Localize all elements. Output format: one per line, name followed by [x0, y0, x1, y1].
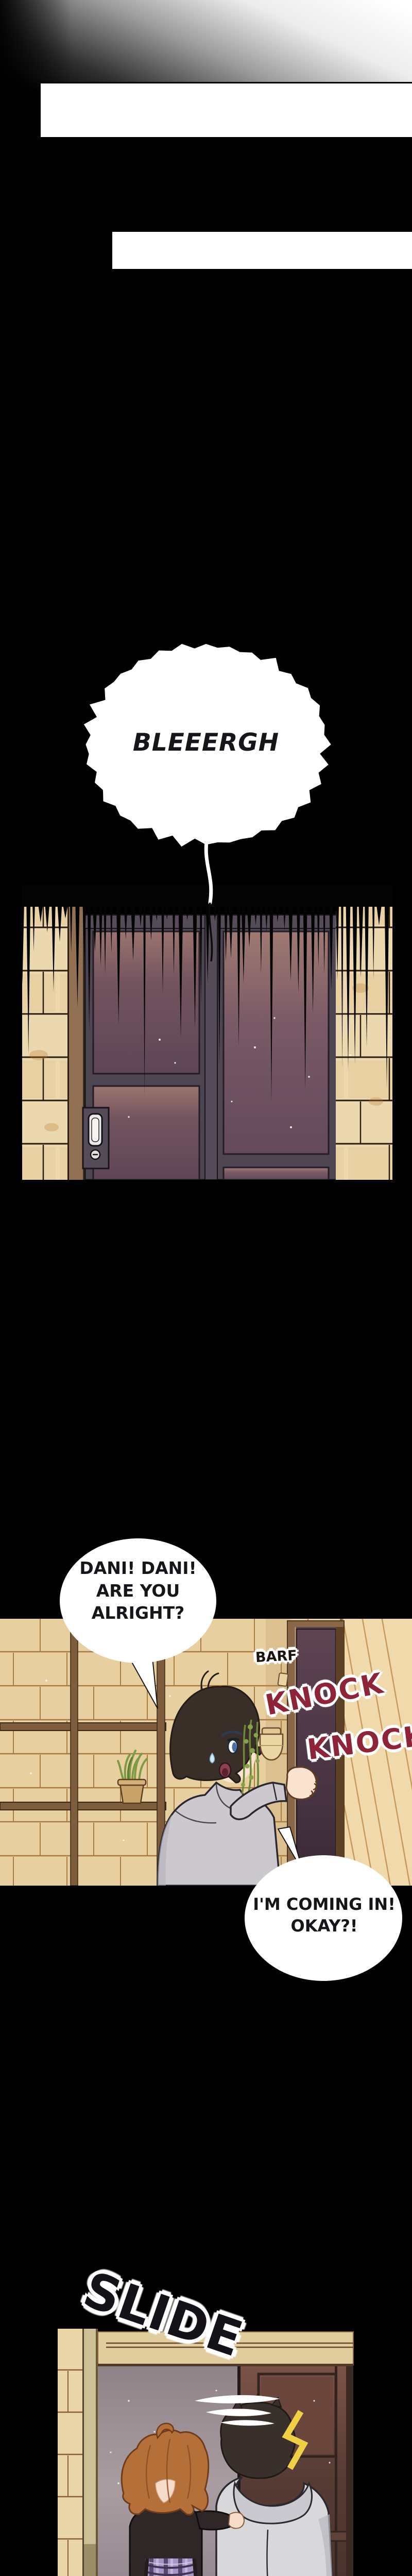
girl-skirt [145, 2558, 195, 2576]
brick-wall-strip [58, 2329, 84, 2576]
bubble-tail-white [206, 837, 211, 903]
masked-title-bar [39, 82, 412, 139]
girl-hand [229, 2513, 244, 2529]
bubble-tail-dark [209, 903, 212, 961]
shelf-bar-top [0, 1723, 166, 1731]
masked-subtitle-bar [111, 231, 412, 270]
panel-slide-scene [0, 2329, 412, 2576]
bleeergh-text: BLEEERGH [77, 728, 335, 757]
speech-bubble-bleeergh [62, 634, 350, 974]
dani-text: DANI! DANI! ARE YOU ALRIGHT? [61, 1557, 215, 1624]
top-gradient-left-shade [0, 0, 72, 90]
wall-lamp [260, 1728, 283, 1760]
girl-arm [196, 2511, 233, 2530]
coming-text: I'M COMING IN! OKAY?! [251, 1894, 398, 1937]
sfx-barf: BARF [255, 1648, 297, 1666]
webtoon-page: BLEEERGH [0, 0, 412, 2576]
doorway-frame-strip [84, 2329, 98, 2576]
